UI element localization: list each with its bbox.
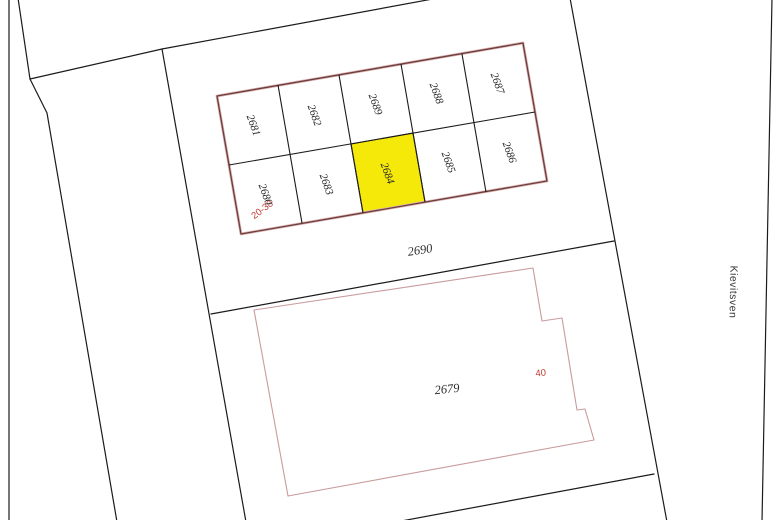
parcel-label-2688: 2688 bbox=[427, 81, 446, 106]
map-canvas: 20-38 40 2681 2682 2689 2688 2687 2680 2… bbox=[0, 0, 780, 520]
boundary-lines bbox=[9, 0, 772, 520]
parcel-label-2690: 2690 bbox=[407, 241, 435, 259]
house-number-label: 40 bbox=[535, 367, 547, 379]
parcel-label-2683: 2683 bbox=[317, 172, 336, 197]
street-name-label: Kievitsven bbox=[727, 265, 740, 318]
parcel-label-2681: 2681 bbox=[244, 113, 263, 138]
parcel-label-2687: 2687 bbox=[488, 71, 507, 96]
parcel-label-2686: 2686 bbox=[500, 140, 519, 165]
boundary-line-bottom-branch bbox=[396, 474, 654, 520]
boundary-line-right-border bbox=[762, 0, 772, 520]
parcel-label-2682: 2682 bbox=[305, 103, 324, 128]
parcel-label-2680: 2680 bbox=[256, 182, 275, 207]
parcel-2679-outline bbox=[254, 268, 594, 496]
cadastral-map: 20-38 40 2681 2682 2689 2688 2687 2680 2… bbox=[0, 0, 780, 520]
parcel-label-2689: 2689 bbox=[366, 92, 385, 117]
parcel-label-2685: 2685 bbox=[439, 150, 458, 175]
parcel-label-2679: 2679 bbox=[434, 381, 461, 398]
area-labels: 2690 2679 bbox=[407, 241, 461, 397]
boundary-line-inner-left bbox=[162, 49, 246, 520]
